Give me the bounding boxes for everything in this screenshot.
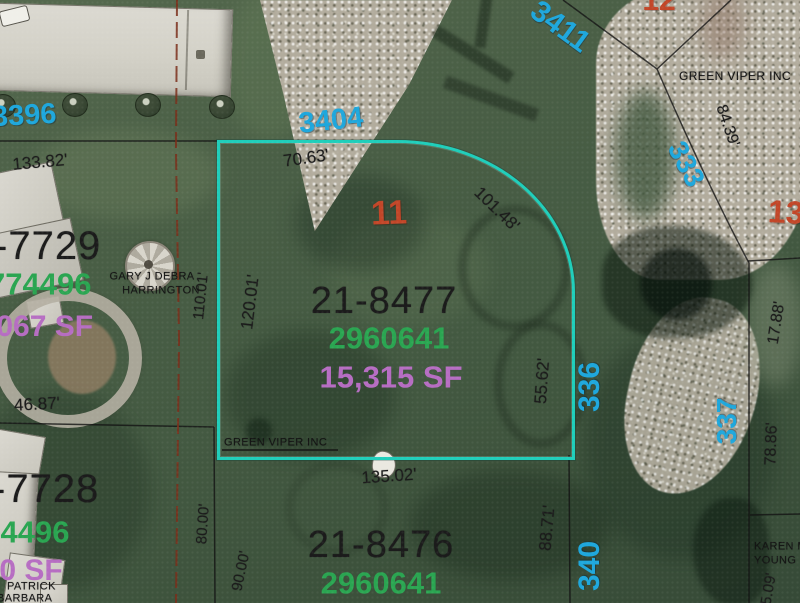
dimension-label: 46.87' [14, 394, 61, 413]
lot-line-southwest-h [0, 423, 214, 427]
dimension-label: 88.71' [537, 504, 558, 551]
street-number-label: 3396 [0, 100, 57, 132]
lot-line-east-h1 [748, 258, 800, 261]
parcel-owner-label: YOUNG [754, 556, 796, 567]
street-number-label: 336 [575, 362, 605, 412]
dimension-label: 80.00' [194, 503, 212, 544]
parcel-alt-id-label: 774496 [0, 517, 69, 548]
parcel-alt-id-label: 2960641 [321, 568, 442, 599]
parcel-id-label: 21-8476 [308, 526, 454, 564]
street-number-label: 340 [575, 541, 605, 591]
parcel-alt-id-label: 2960641 [329, 323, 450, 354]
dimension-label: 135.02' [361, 466, 417, 487]
lot-line-east-h2 [750, 514, 800, 515]
lot-number-label: 13 [767, 195, 800, 229]
section-line-red [176, 0, 179, 603]
parcel-map-canvas[interactable]: 3396 3404 3411 333 336 337 340 11 12 13 … [0, 0, 800, 603]
parcel-alt-id-label: 774496 [0, 269, 91, 300]
parcel-owner-label: BARBARA [0, 594, 52, 603]
lot-line-south-mid-v [569, 455, 570, 603]
dimension-label: 133.82' [12, 151, 69, 173]
parcel-id-label: 21-8477 [311, 282, 457, 320]
dimension-label: 78.86' [763, 422, 780, 466]
lot-number-label: 12 [642, 0, 675, 16]
parcel-owner-label: GREEN VIPER INC [679, 70, 791, 82]
parcel-owner-label: PATRICK [7, 582, 56, 593]
parcel-id-label: -7729 [0, 226, 101, 266]
parcel-owner-label: HARRINGTON [122, 286, 200, 297]
parcel-area-label: ,067 SF [0, 312, 93, 342]
parcel-owner-label: GARY J DEBRA [109, 272, 194, 283]
street-number-label: 337 [713, 398, 741, 445]
parcel-id-label: -7728 [0, 469, 99, 509]
street-number-label: 3404 [297, 103, 364, 139]
lot-line-southwest-v [214, 427, 215, 603]
parcel-owner-label: GREEN VIPER INC [224, 438, 327, 449]
lot-number-label: 11 [370, 195, 407, 230]
parcel-area-label: 15,315 SF [319, 362, 462, 393]
dimension-label: 55.62' [532, 358, 552, 405]
parcel-owner-label: KAREN M [754, 542, 800, 553]
